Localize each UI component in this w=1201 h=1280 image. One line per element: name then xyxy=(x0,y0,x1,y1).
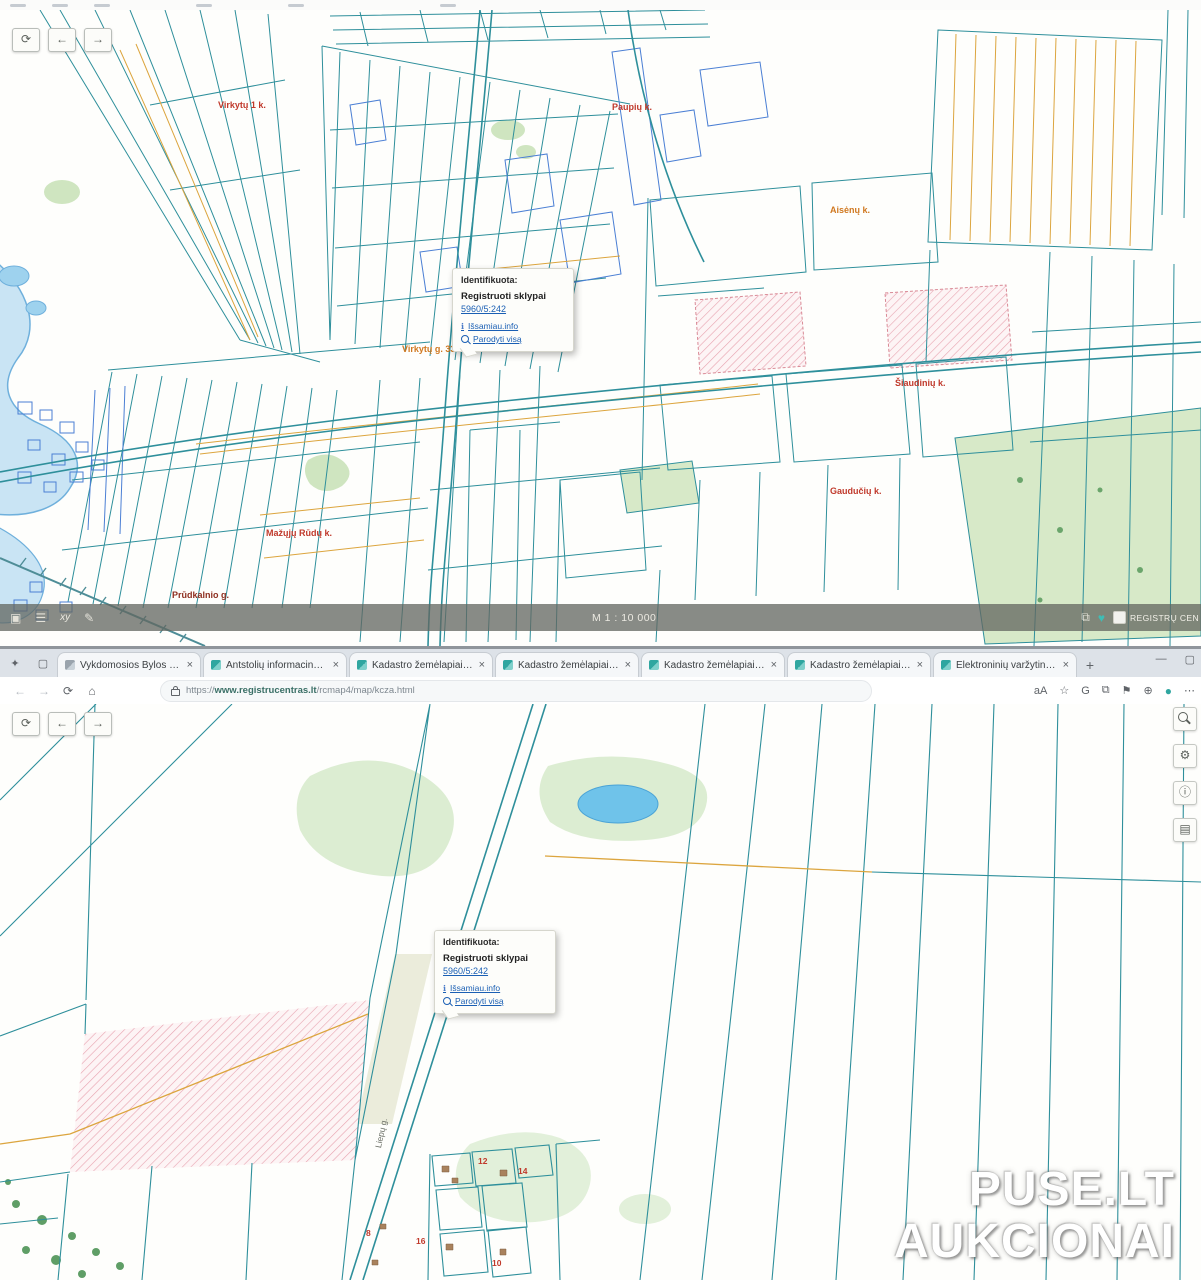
tab-favicon-icon xyxy=(211,660,221,670)
forward-nav-icon[interactable]: → xyxy=(32,684,56,698)
magnifier-icon xyxy=(443,997,451,1005)
tab-close-icon[interactable]: × xyxy=(479,659,485,671)
forward-button[interactable]: → xyxy=(84,712,112,736)
identify-popup: Identifikuota: Registruoti sklypai 5960/… xyxy=(434,930,556,1014)
magnifier-icon xyxy=(461,335,469,343)
popup-header: Identifikuota: xyxy=(461,275,565,285)
page-url: https://www.registrucentras.lt/rcmap4/ma… xyxy=(186,685,415,696)
village-label: Aisėnų k. xyxy=(830,205,870,215)
parcel-number: 8 xyxy=(366,1228,371,1238)
popup-title: Registruoti sklypai xyxy=(461,291,565,302)
forward-button[interactable]: → xyxy=(84,28,112,52)
zoom-to-parcel-link[interactable]: Parodyti visą xyxy=(443,996,547,1006)
window-controls: — ▢ xyxy=(1156,649,1201,666)
extensions-icon[interactable]: ⊕ xyxy=(1144,684,1153,697)
favorites-heart-icon[interactable]: ♥ xyxy=(1098,611,1105,625)
village-label: Šiaudinių k. xyxy=(895,378,946,388)
map-tiles-overview xyxy=(0,10,1201,646)
parcel-number: 12 xyxy=(478,1156,487,1166)
tab-kadastro-zemelapiai-2[interactable]: Kadastro žemėlapiai 4.1.25 × xyxy=(495,652,639,677)
tab-favicon-icon xyxy=(357,660,367,670)
village-label: Paupių k. xyxy=(612,102,652,112)
toolbar-actions: aA ☆ G ⧉ ⚑ ⊕ ● ⋯ xyxy=(1034,684,1195,698)
info-icon: ℹ xyxy=(443,984,446,993)
tab-close-icon[interactable]: × xyxy=(917,659,923,671)
tab-kadastro-zemelapiai-3[interactable]: Kadastro žemėlapiai 4.1.25 × xyxy=(641,652,785,677)
popup-title: Registruoti sklypai xyxy=(443,953,547,964)
parcel-info-link[interactable]: ℹ Išsamiau.info xyxy=(461,321,565,331)
restore-button[interactable]: ▢ xyxy=(1185,653,1195,666)
cadastral-map-overview[interactable]: ⟳ ← → Virkytų 1 k. Paupių k. Aisėnų k. Š… xyxy=(0,10,1201,646)
g-extension-icon[interactable]: G xyxy=(1081,685,1090,697)
workspace-icon[interactable]: ✦ xyxy=(6,655,24,673)
tab-kadastro-zemelapiai-1[interactable]: Kadastro žemėlapiai 4.1.25 × xyxy=(349,652,493,677)
reset-view-button[interactable]: ⟳ xyxy=(12,28,40,52)
zoom-to-parcel-link[interactable]: Parodyti visą xyxy=(461,334,565,344)
identify-popup: Identifikuota: Registruoti sklypai 5960/… xyxy=(452,268,574,352)
back-nav-icon[interactable]: ← xyxy=(8,684,32,698)
village-label: Mažųjų Rūdų k. xyxy=(266,528,332,538)
profile-icon[interactable]: ● xyxy=(1165,684,1172,698)
measure-tool-icon[interactable]: ☰ xyxy=(35,611,46,625)
back-button[interactable]: ← xyxy=(48,712,76,736)
village-label: Gaudučių k. xyxy=(830,486,882,496)
address-bar[interactable]: https://www.registrucentras.lt/rcmap4/ma… xyxy=(160,680,872,702)
brand-logo-icon xyxy=(1113,611,1126,624)
tab-close-icon[interactable]: × xyxy=(771,659,777,671)
search-tool-button[interactable] xyxy=(1173,707,1197,731)
tab-list-icon[interactable]: ▢ xyxy=(34,655,52,673)
settings-tool-button[interactable]: ⚙ xyxy=(1173,744,1197,768)
coordinates-tool[interactable]: xy xyxy=(60,612,70,623)
parcel-number-link[interactable]: 5960/5:242 xyxy=(443,966,547,976)
map-scale: M 1 : 10 000 xyxy=(592,612,656,624)
layers-tool-icon[interactable]: ▣ xyxy=(10,611,21,625)
home-icon[interactable]: ⌂ xyxy=(80,684,104,698)
reload-icon[interactable]: ⟳ xyxy=(56,684,80,698)
settings-menu-icon[interactable]: ⋯ xyxy=(1184,684,1195,697)
draw-tool-icon[interactable]: ✎ xyxy=(84,611,94,625)
tab-kadastro-zemelapiai-4[interactable]: Kadastro žemėlapiai 4.1.25 × xyxy=(787,652,931,677)
tab-favicon-icon xyxy=(503,660,513,670)
tab-close-icon[interactable]: × xyxy=(187,659,193,671)
map-nav-controls: ⟳ ← → xyxy=(12,712,112,736)
tab-elektroniniu-varzytiniu[interactable]: Elektroninių varžytinių ir aukc... × xyxy=(933,652,1077,677)
parcel-number: 10 xyxy=(492,1258,501,1268)
browser-toolbar: ← → ⟳ ⌂ https://www.registrucentras.lt/r… xyxy=(0,677,1201,705)
back-button[interactable]: ← xyxy=(48,28,76,52)
browser-tabstrip: ✦ ▢ Vykdomosios Bylos Portalas × Antstol… xyxy=(0,649,1201,677)
tab-favicon-icon xyxy=(649,660,659,670)
puse-lt-watermark: PUSE.LT AUKCIONAI xyxy=(894,1164,1175,1268)
parcel-info-link[interactable]: ℹ Išsamiau.info xyxy=(443,983,547,993)
tab-close-icon[interactable]: × xyxy=(625,659,631,671)
new-tab-button[interactable]: + xyxy=(1078,653,1102,677)
lock-icon xyxy=(171,689,180,696)
map-nav-controls: ⟳ ← → xyxy=(12,28,112,52)
tab-vykdomosios-bylos[interactable]: Vykdomosios Bylos Portalas × xyxy=(57,652,201,677)
layers-tool-button[interactable]: ▤ xyxy=(1173,818,1197,842)
favorites-star-icon[interactable]: ☆ xyxy=(1059,684,1069,697)
street-label: Prūdkalnio g. xyxy=(172,590,229,600)
translate-icon[interactable]: aA xyxy=(1034,685,1047,697)
parcel-number: 16 xyxy=(416,1236,425,1246)
fullscreen-icon[interactable]: ⧉ xyxy=(1081,610,1090,625)
map-statusbar: ▣ ☰ xy ✎ M 1 : 10 000 ⧉ ♥ REGISTRŲ CENTR… xyxy=(0,604,1201,631)
minimize-button[interactable]: — xyxy=(1156,653,1167,666)
parcel-number-link[interactable]: 5960/5:242 xyxy=(461,304,565,314)
tab-favicon-icon xyxy=(941,660,951,670)
tab-close-icon[interactable]: × xyxy=(1063,659,1069,671)
tab-close-icon[interactable]: × xyxy=(333,659,339,671)
registru-centras-logo: REGISTRŲ CENTRAS xyxy=(1113,611,1199,624)
info-icon: ℹ xyxy=(461,322,464,331)
tab-favicon-icon xyxy=(65,660,75,670)
cropped-browser-edge xyxy=(0,0,1201,10)
popup-header: Identifikuota: xyxy=(443,937,547,947)
search-icon xyxy=(1178,712,1188,722)
screenshot-canvas: ⟳ ← → Virkytų 1 k. Paupių k. Aisėnų k. Š… xyxy=(0,0,1201,1280)
top-screenshot: ⟳ ← → Virkytų 1 k. Paupių k. Aisėnų k. Š… xyxy=(0,0,1201,646)
tab-favicon-icon xyxy=(795,660,805,670)
map-side-toolbar: ⚙ ⓘ ▤ xyxy=(1173,707,1197,842)
collections-icon[interactable]: ⚑ xyxy=(1122,684,1132,697)
info-tool-button[interactable]: ⓘ xyxy=(1173,781,1197,805)
parcel-number: 14 xyxy=(518,1166,527,1176)
reset-view-button[interactable]: ⟳ xyxy=(12,712,40,736)
split-screen-icon[interactable]: ⧉ xyxy=(1102,684,1110,697)
village-label: Virkytų 1 k. xyxy=(218,100,266,110)
tab-antstoliu-sistema[interactable]: Antstolių informacinė sistema × xyxy=(203,652,347,677)
